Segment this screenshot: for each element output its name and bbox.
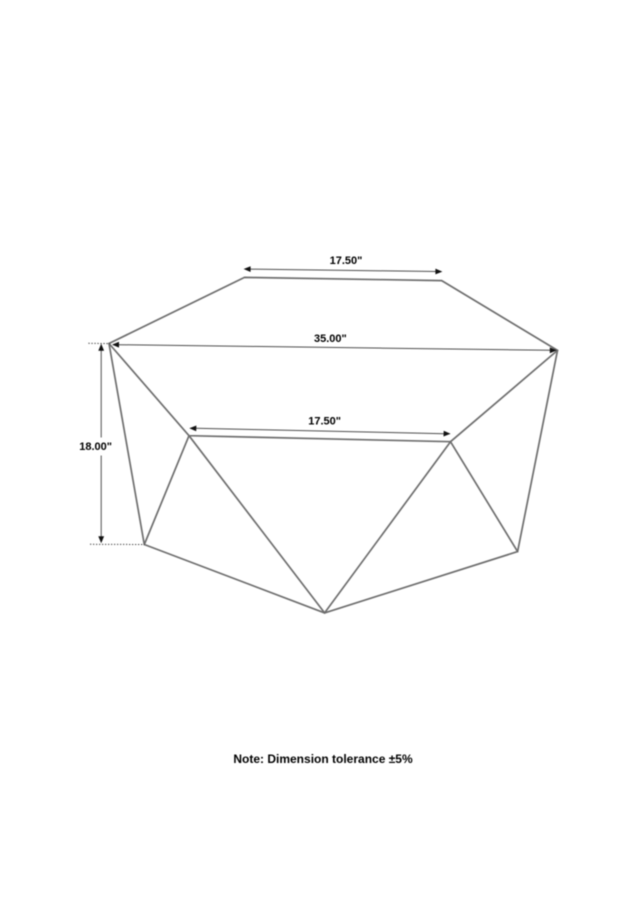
- svg-text:17.50": 17.50": [330, 255, 363, 267]
- svg-text:18.00": 18.00": [79, 441, 112, 453]
- svg-text:17.50": 17.50": [308, 416, 341, 428]
- svg-text:35.00": 35.00": [314, 333, 347, 345]
